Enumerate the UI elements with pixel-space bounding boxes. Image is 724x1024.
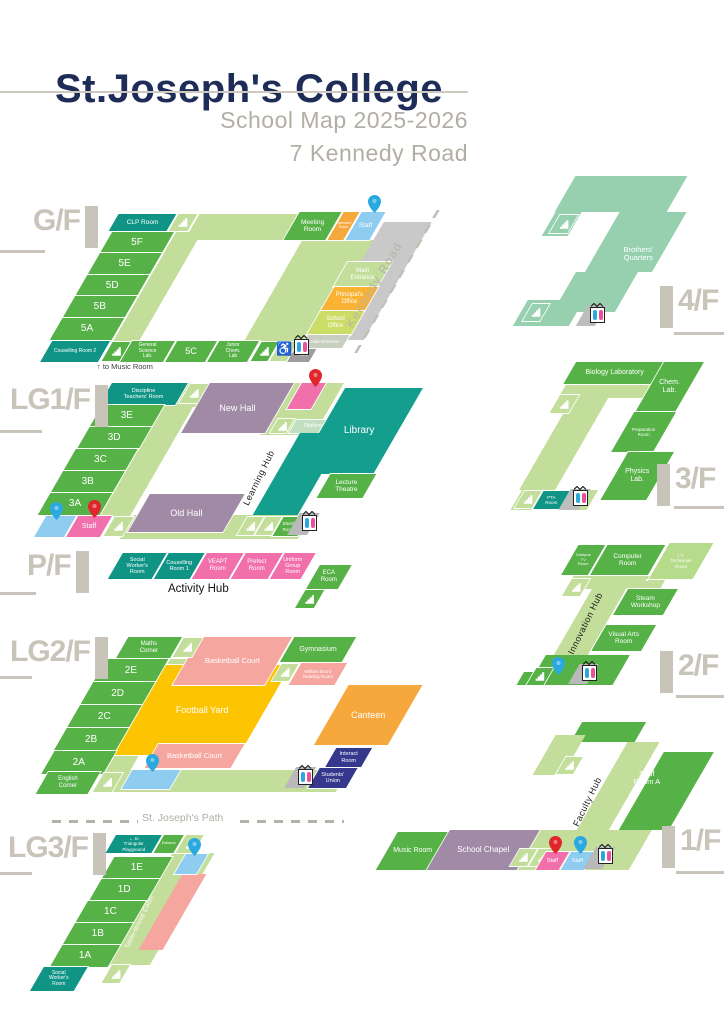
school-map-page: St.Joseph's College School Map 2025-2026… [0, 0, 724, 1024]
lift-icon [302, 511, 317, 531]
rotated-label: Kennedy Road [343, 239, 405, 330]
path-dashed-line [240, 820, 344, 823]
floor-label-text: 3/F [675, 464, 715, 494]
map-pin-blue [146, 754, 159, 777]
floor-label-bar [95, 385, 108, 427]
floor-label-text: LG2/F [10, 637, 90, 667]
floor-label-pf: P/F [27, 551, 89, 593]
floor-label-lg2f: LG2/F [10, 637, 108, 679]
floor-label-bar [93, 833, 106, 875]
floor-label-text: 4/F [678, 286, 718, 316]
map-note: ↑ to Music Room [97, 362, 153, 371]
floor-label-text: LG1/F [10, 385, 90, 415]
floor-label-lg3f: LG3/F [8, 833, 106, 875]
floor-label-bar [657, 464, 670, 506]
map-pin-red [309, 369, 322, 392]
floor-label-bar [76, 551, 89, 593]
floor-label-text: P/F [27, 551, 71, 581]
floor-underline [0, 676, 32, 679]
floor-label-gf: G/F [33, 206, 98, 248]
floor-label-text: 1/F [680, 826, 720, 856]
floor-underline [676, 871, 724, 874]
lift-icon [590, 303, 605, 323]
path-dashed-line [52, 820, 138, 823]
floor-underline [0, 430, 42, 433]
lift-icon [294, 335, 309, 355]
lift-icon [298, 765, 313, 785]
map-pin-blue [552, 657, 565, 680]
floor-underline [0, 872, 32, 875]
lift-icon [573, 486, 588, 506]
floor-label-2f: 2/F [660, 651, 718, 693]
map-note: Activity Hub [168, 583, 229, 595]
floor-underline [676, 695, 724, 698]
floor-label-lg1f: LG1/F [10, 385, 108, 427]
floor-label-3f: 3/F [657, 464, 715, 506]
floor-label-1f: 1/F [662, 826, 720, 868]
floor-label-bar [95, 637, 108, 679]
map-pin-blue [368, 195, 381, 218]
rotated-label: Learning Hub [241, 449, 276, 507]
rotated-label: Faculty Hub [571, 776, 603, 828]
floor-underline [674, 506, 724, 509]
floor-label-text: 2/F [678, 651, 718, 681]
lift-icon [598, 844, 613, 864]
map-pin-blue [50, 502, 63, 525]
floor-label-text: G/F [33, 206, 80, 236]
map-note: St. Joseph's Path [142, 812, 223, 824]
floor-underline [674, 332, 724, 335]
map-pin-blue [574, 836, 587, 859]
map-overlay-layer: G/F4/FLG1/F3/FP/F2/FLG2/F1/FLG3/F♿Kenned… [0, 0, 724, 1024]
rotated-label: Innovation Hub [566, 591, 605, 656]
rotated-label: Table-tennis Court [124, 895, 156, 950]
map-pin-red [549, 836, 562, 859]
floor-label-4f: 4/F [660, 286, 718, 328]
floor-label-bar [660, 651, 673, 693]
map-pin-red [88, 500, 101, 523]
floor-label-bar [85, 206, 98, 248]
wheelchair-icon: ♿ [276, 342, 292, 355]
floor-label-text: LG3/F [8, 833, 88, 863]
floor-underline [0, 250, 45, 253]
floor-underline [0, 592, 36, 595]
lift-icon [582, 661, 597, 681]
map-pin-blue [188, 838, 201, 861]
floor-label-bar [662, 826, 675, 868]
floor-label-bar [660, 286, 673, 328]
